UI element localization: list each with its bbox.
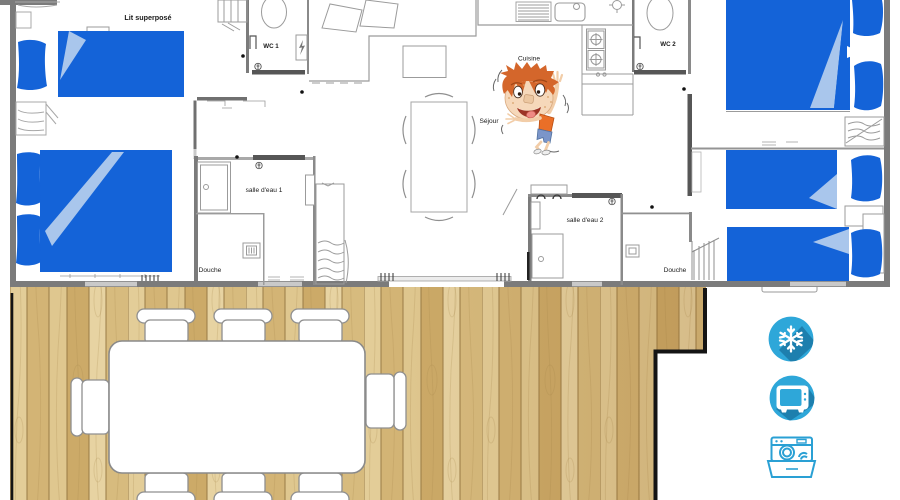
svg-text:salle d'eau 1: salle d'eau 1	[246, 187, 283, 194]
svg-text:salle d'eau 2: salle d'eau 2	[567, 217, 604, 224]
svg-text:Cuisine: Cuisine	[518, 56, 540, 63]
svg-text:Douche: Douche	[664, 267, 687, 274]
svg-text:WC 2: WC 2	[660, 41, 676, 48]
svg-text:WC 1: WC 1	[263, 43, 279, 50]
svg-text:Séjour: Séjour	[479, 118, 499, 125]
svg-text:Douche: Douche	[199, 267, 222, 274]
svg-text:Lit superposé: Lit superposé	[124, 13, 171, 22]
